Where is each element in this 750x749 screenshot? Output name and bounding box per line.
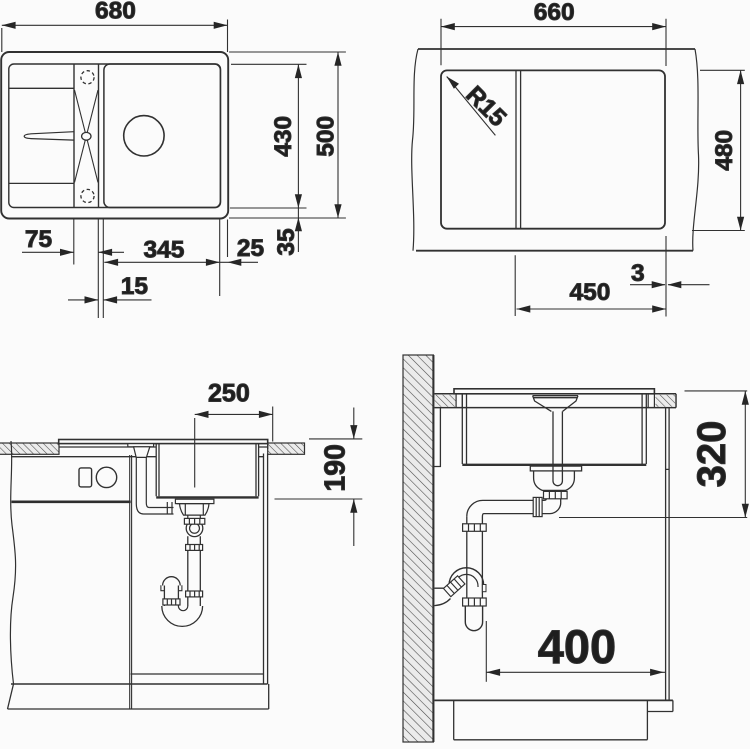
svg-text:250: 250 <box>208 380 250 408</box>
svg-text:400: 400 <box>538 620 616 673</box>
svg-text:R15: R15 <box>460 81 511 132</box>
svg-text:320: 320 <box>690 421 734 488</box>
svg-text:190: 190 <box>320 444 352 492</box>
svg-text:480: 480 <box>711 130 738 171</box>
svg-text:430: 430 <box>270 116 297 157</box>
svg-text:25: 25 <box>237 235 264 262</box>
svg-text:75: 75 <box>25 226 52 253</box>
svg-text:680: 680 <box>95 0 136 25</box>
svg-text:15: 15 <box>121 273 148 300</box>
svg-text:500: 500 <box>313 116 340 157</box>
svg-text:450: 450 <box>570 279 611 306</box>
svg-text:345: 345 <box>144 237 185 264</box>
svg-text:35: 35 <box>273 228 300 255</box>
svg-text:660: 660 <box>534 0 575 26</box>
svg-text:3: 3 <box>631 260 645 287</box>
